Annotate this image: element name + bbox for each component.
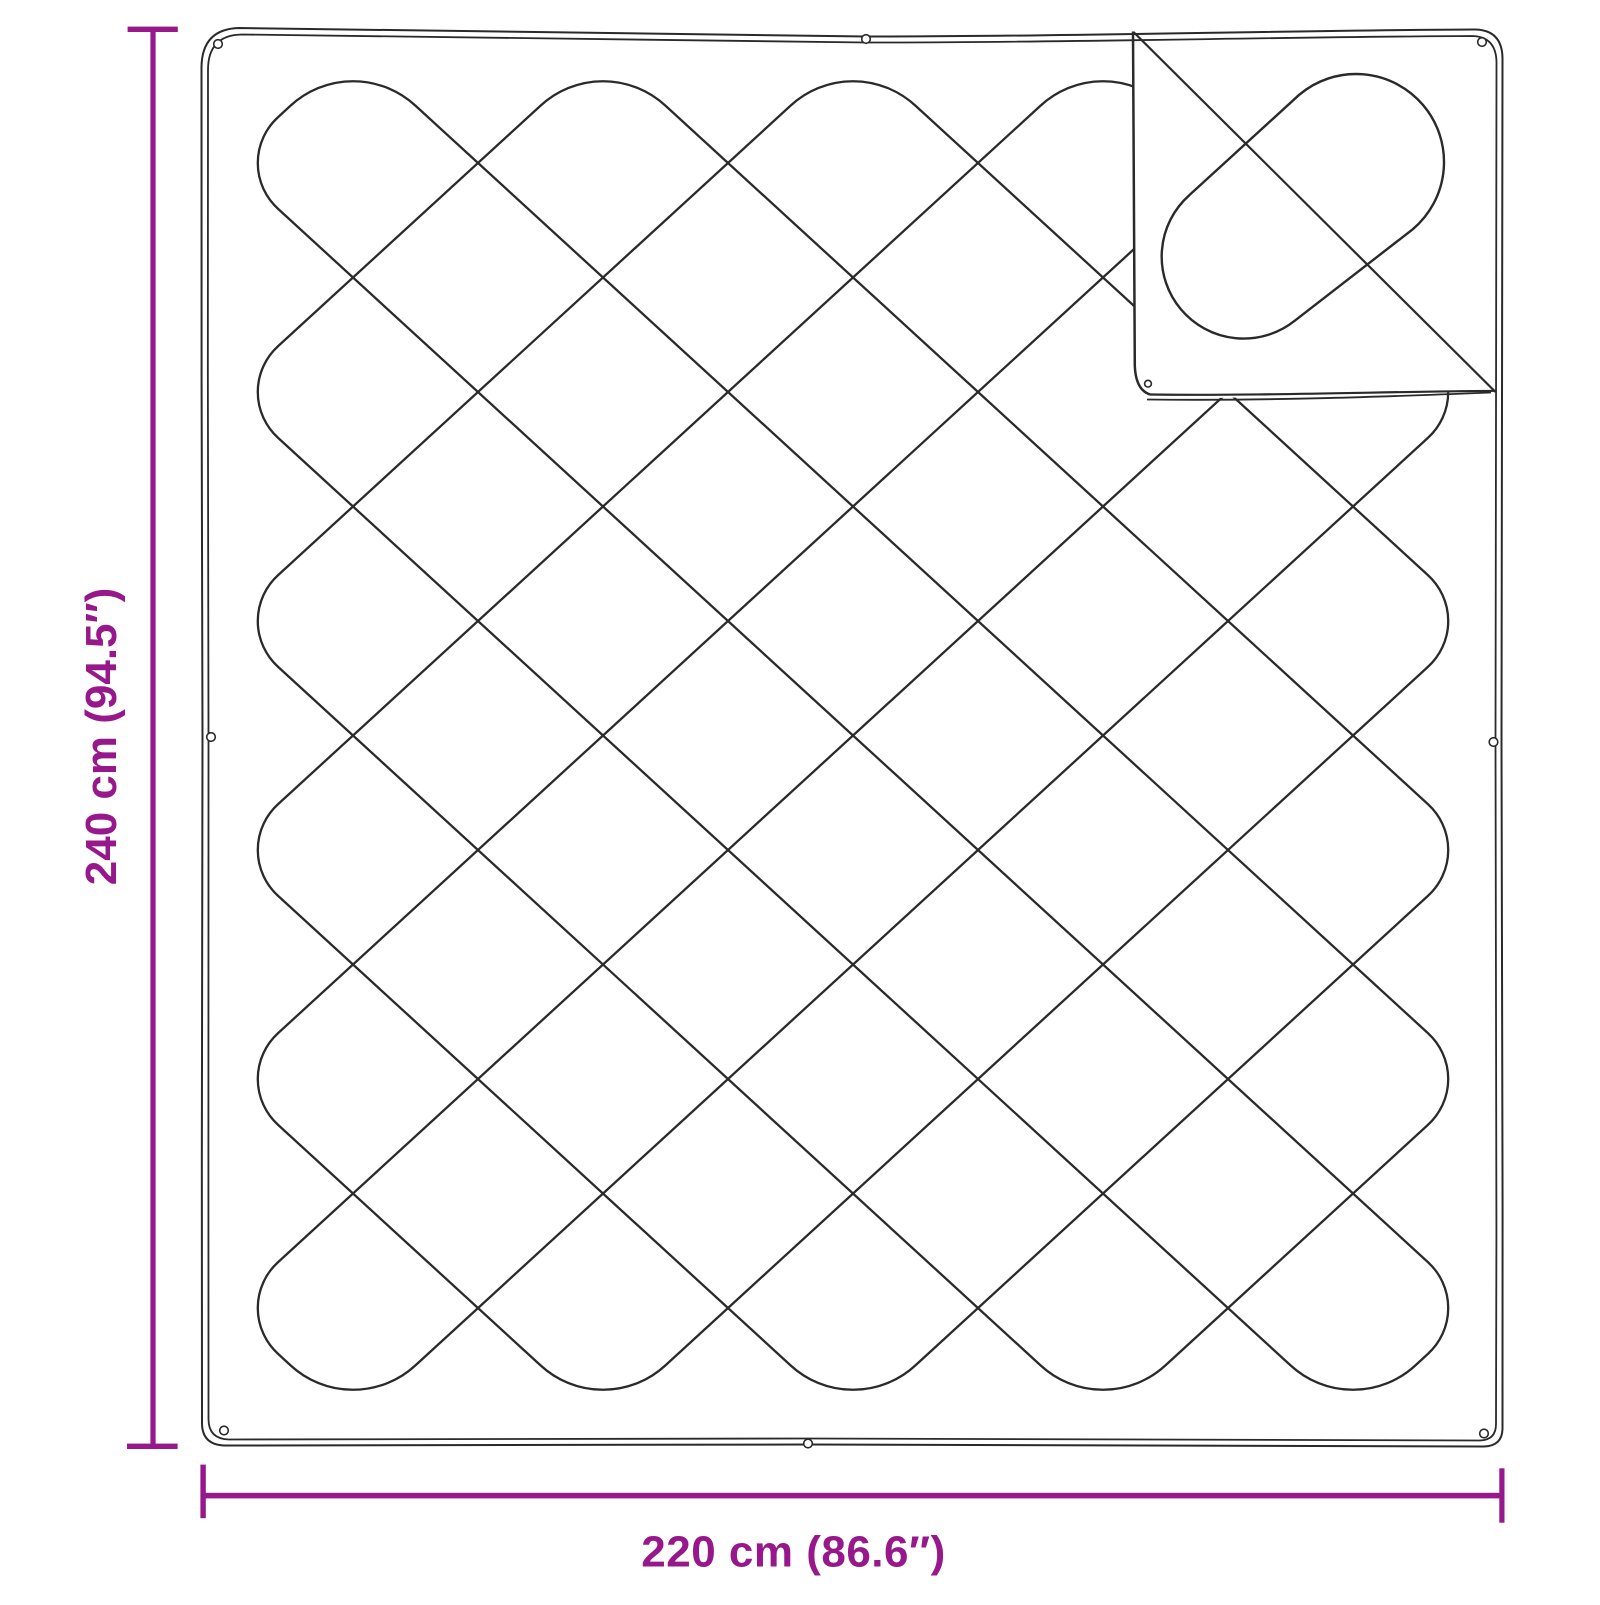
svg-text:220 cm (86.6″): 220 cm (86.6″) bbox=[641, 1528, 945, 1577]
svg-text:240 cm (94.5″): 240 cm (94.5″) bbox=[77, 588, 126, 885]
